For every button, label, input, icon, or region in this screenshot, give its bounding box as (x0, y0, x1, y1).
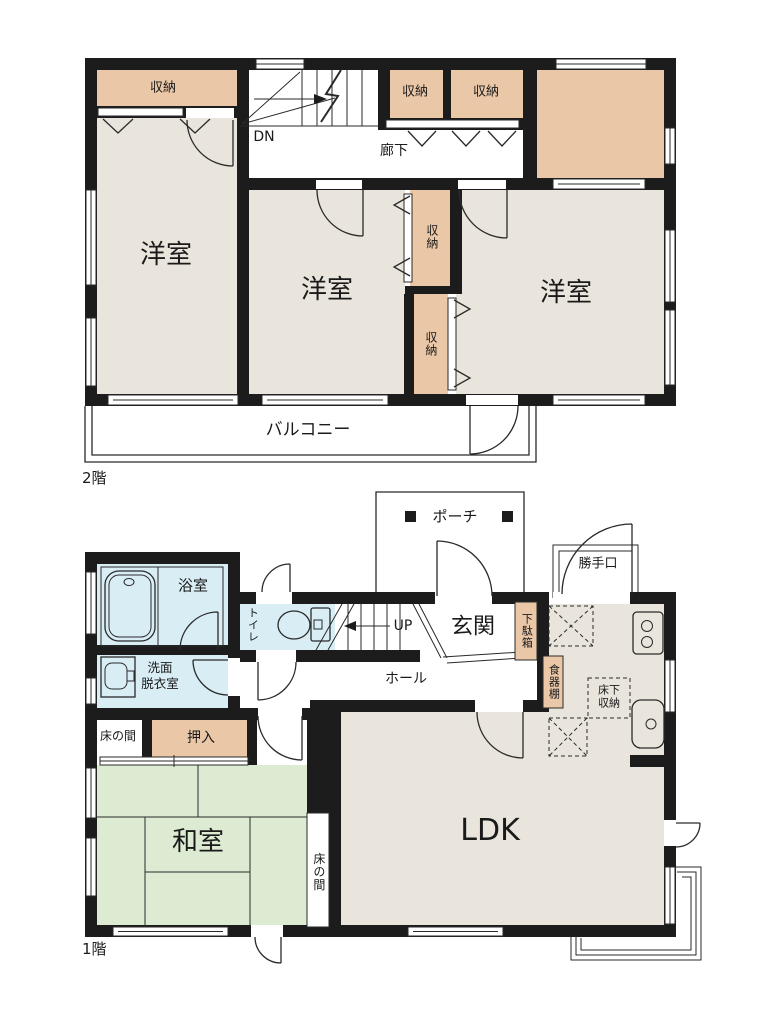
label-japanese-room: 和室 (172, 828, 224, 858)
label-washroom: 脱衣室 (141, 677, 179, 691)
label-balcony: バルコニー (266, 421, 351, 441)
label-underfloor-storage: 床下 (598, 685, 620, 698)
floor-plan: 収納 DN 収納 収納 廊下 洋室 洋室 洋室 収納 収納 バルコニー 2階 ポ… (0, 0, 760, 1024)
label-western-room: 洋室 (301, 276, 353, 306)
garden-door-arc (676, 823, 700, 847)
door-arc (255, 937, 281, 963)
label-stairs-up: UP (394, 618, 413, 634)
label-underfloor-storage: 収納 (598, 698, 620, 711)
porch-pillar (405, 511, 416, 522)
label-oshiire: 押入 (187, 730, 215, 746)
label-back-door: 勝手口 (578, 558, 617, 573)
label-shoe-cabinet: 下駄箱 (520, 613, 533, 649)
label-tokonoma: 床の間 (100, 730, 136, 744)
label-cupboard: 食器棚 (547, 664, 560, 700)
first-floor-label: 1階 (82, 938, 107, 959)
label-closet: 収納 (424, 224, 438, 250)
label-closet: 収納 (150, 82, 176, 97)
label-closet: 収納 (473, 86, 499, 101)
label-stairs-dn: DN (253, 129, 274, 145)
porch-pillar (502, 511, 513, 522)
label-washroom: 洗面 (147, 661, 172, 675)
label-tokonoma: 床の間 (311, 853, 325, 892)
label-toilet: トイレ (246, 607, 259, 643)
label-entrance: 玄関 (451, 614, 495, 639)
label-bathroom: 浴室 (178, 577, 208, 594)
label-western-room: 洋室 (540, 279, 592, 309)
label-closet: 収納 (423, 331, 437, 357)
label-closet: 収納 (402, 86, 428, 101)
label-porch: ポーチ (432, 508, 477, 525)
second-floor-label: 2階 (82, 467, 107, 488)
balcony-door-arc (470, 406, 518, 454)
sliding-door (100, 755, 248, 767)
label-hall: ホール (385, 671, 427, 687)
label-western-room: 洋室 (140, 241, 192, 271)
label-corridor: 廊下 (380, 143, 408, 159)
label-ldk: LDK (460, 814, 520, 849)
